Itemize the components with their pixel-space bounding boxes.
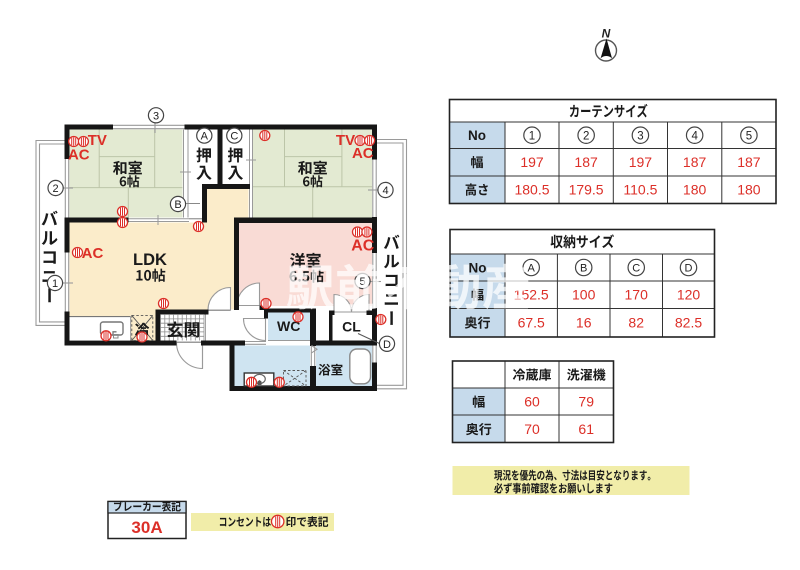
svg-text:82.5: 82.5 (675, 315, 702, 331)
svg-text:180: 180 (683, 182, 707, 198)
svg-text:2: 2 (583, 130, 589, 142)
svg-text:4: 4 (691, 130, 698, 142)
svg-text:TV: TV (88, 132, 107, 149)
svg-text:AC: AC (68, 147, 90, 164)
svg-text:B: B (174, 199, 181, 211)
svg-text:AC: AC (352, 145, 374, 162)
svg-text:67.5: 67.5 (518, 315, 545, 331)
svg-text:60: 60 (524, 394, 540, 410)
svg-text:170: 170 (625, 287, 649, 303)
svg-text:B: B (580, 262, 587, 274)
svg-text:30A: 30A (131, 518, 162, 537)
svg-text:179.5: 179.5 (569, 182, 604, 198)
svg-text:5: 5 (746, 130, 752, 142)
svg-text:4: 4 (382, 185, 388, 197)
svg-text:A: A (528, 262, 536, 274)
svg-text:A: A (201, 131, 209, 143)
svg-text:C: C (632, 262, 640, 274)
svg-text:82: 82 (628, 315, 644, 331)
svg-text:No: No (469, 261, 487, 276)
svg-text:187: 187 (737, 154, 761, 170)
svg-text:110.5: 110.5 (623, 182, 657, 198)
svg-text:79: 79 (578, 394, 594, 410)
svg-text:120: 120 (677, 287, 701, 303)
svg-text:C: C (230, 131, 238, 143)
svg-text:2: 2 (53, 183, 59, 195)
svg-text:187: 187 (574, 154, 598, 170)
svg-text:197: 197 (520, 154, 544, 170)
svg-text:61: 61 (578, 421, 594, 437)
svg-text:187: 187 (683, 154, 707, 170)
svg-text:AC: AC (82, 245, 104, 262)
svg-text:100: 100 (572, 287, 596, 303)
svg-text:No: No (468, 128, 486, 143)
svg-text:3: 3 (637, 130, 643, 142)
svg-text:D: D (383, 339, 391, 351)
svg-text:AC: AC (351, 238, 375, 255)
svg-text:D: D (685, 262, 693, 274)
svg-text:70: 70 (524, 421, 540, 437)
svg-text:180.5: 180.5 (514, 182, 549, 198)
svg-text:CL: CL (342, 319, 361, 335)
svg-text:197: 197 (629, 154, 653, 170)
svg-text:3: 3 (153, 110, 159, 122)
svg-text:LDK: LDK (133, 251, 167, 269)
svg-text:180: 180 (737, 182, 761, 198)
svg-text:16: 16 (576, 315, 592, 331)
svg-text:1: 1 (529, 130, 535, 142)
svg-text:N: N (602, 27, 611, 41)
svg-text:1: 1 (52, 278, 58, 290)
